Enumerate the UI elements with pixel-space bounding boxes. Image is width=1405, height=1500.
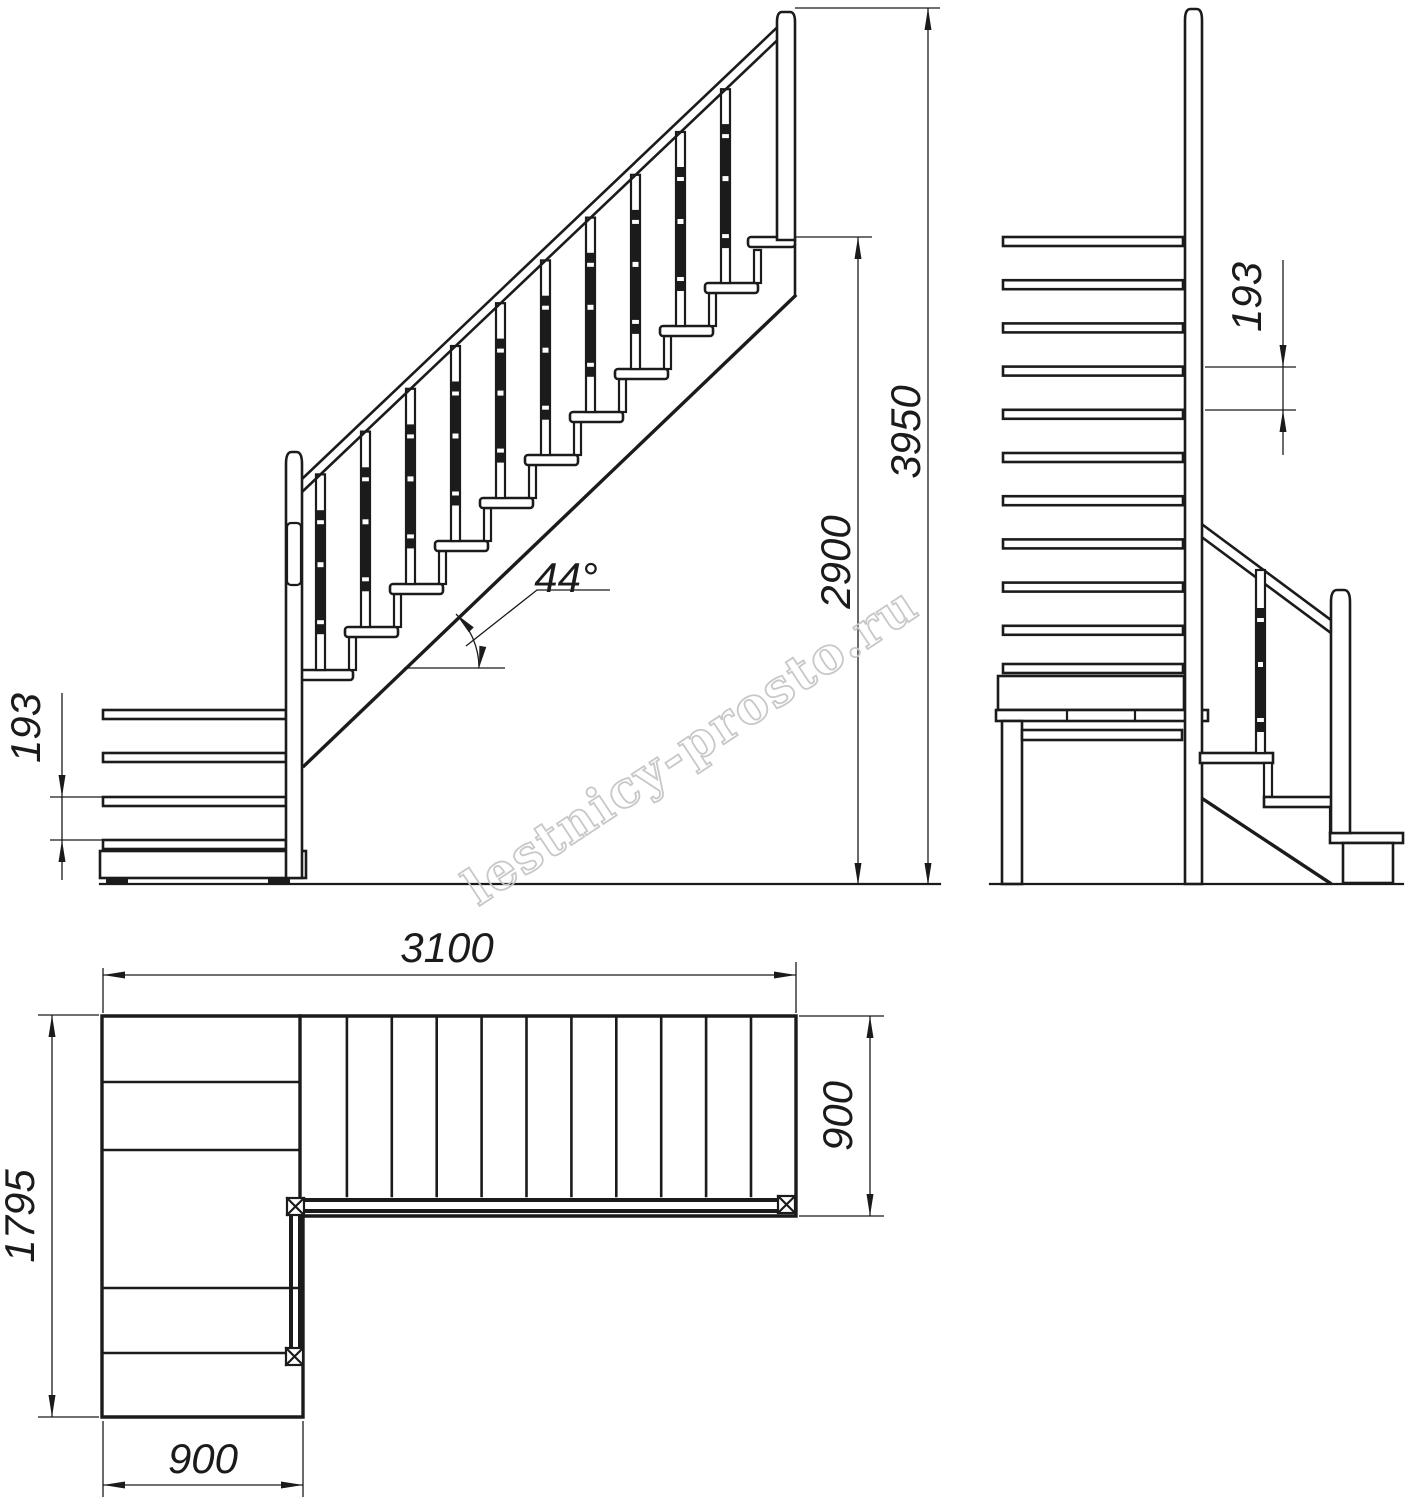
side-tread — [660, 326, 713, 336]
front-tread-board — [1003, 626, 1183, 635]
side-baluster-collar — [587, 253, 595, 263]
side-riser — [619, 379, 626, 412]
side-baluster-collar — [497, 453, 505, 463]
side-balusters — [316, 89, 730, 670]
side-baluster-notch — [318, 562, 324, 567]
front-bottom-step-base — [1343, 843, 1393, 883]
front-tread-board — [1003, 323, 1183, 332]
side-tread — [345, 627, 398, 637]
front-tread-board — [1003, 367, 1183, 376]
side-baluster-notch — [408, 476, 414, 481]
side-lower-flight-boards — [100, 710, 306, 878]
front-baluster-notch — [1258, 662, 1263, 667]
front-lower-stringer — [1203, 799, 1330, 883]
side-riser — [664, 336, 671, 369]
side-baluster-collar — [542, 296, 550, 306]
side-baluster-notch — [588, 305, 594, 310]
side-baluster-bar — [541, 310, 550, 406]
side-baluster-bar — [676, 181, 685, 277]
side-top-newel-post — [777, 12, 795, 240]
side-tread — [705, 283, 758, 293]
dim-plan-overall-depth: 1795 — [0, 1169, 43, 1263]
dim-plan-upper-flight-width: 900 — [814, 1080, 861, 1151]
side-baluster-collar — [362, 581, 370, 591]
front-tread-board — [1003, 664, 1183, 673]
front-lower-riser-1 — [1264, 763, 1272, 797]
plan-newel-bottom — [286, 1348, 303, 1365]
side-baluster-collar — [452, 382, 460, 392]
front-lower-tread-1 — [1200, 753, 1273, 763]
dim-front-riser-height: 193 — [1223, 262, 1270, 332]
front-tread-board — [1003, 280, 1183, 289]
plan-view — [102, 1016, 796, 1417]
side-lower-base — [100, 851, 306, 878]
side-lower-rail-end — [287, 523, 301, 585]
side-baluster-collar — [407, 424, 415, 434]
side-tread — [615, 369, 668, 379]
side-tread — [390, 584, 443, 594]
front-handrail-bottom — [1203, 538, 1331, 633]
side-lower-board — [103, 753, 286, 762]
staircase-drawing: 3950 2900 193 44° 193 3100 — [0, 0, 1405, 1500]
dim-side-incline-angle: 44° — [534, 554, 598, 601]
side-baluster-notch — [543, 348, 549, 353]
side-baluster-notch — [453, 434, 459, 439]
front-tread-board — [1003, 410, 1183, 419]
side-handrail-top — [302, 28, 777, 480]
front-newel-post — [1331, 590, 1350, 833]
side-tread — [480, 498, 533, 508]
front-tread-board — [1003, 583, 1183, 592]
front-left-leg — [1002, 721, 1022, 884]
side-riser — [394, 594, 401, 627]
side-baluster-collar — [677, 281, 685, 291]
side-baluster-bar — [361, 481, 370, 577]
plan-newel-right — [778, 1196, 795, 1213]
front-baluster-collar — [1257, 722, 1265, 732]
side-baluster-collar — [317, 510, 325, 520]
side-baluster-collar — [587, 367, 595, 377]
front-view — [990, 9, 1403, 884]
side-baluster-bar — [631, 224, 640, 320]
front-baluster-bar — [1256, 622, 1265, 718]
side-lower-board — [103, 710, 286, 719]
side-turn-newel-post — [286, 452, 302, 878]
dim-plan-overall-length: 3100 — [400, 924, 494, 971]
front-upper-flight-treads — [1003, 237, 1183, 673]
front-lower-tread-2 — [1264, 797, 1338, 807]
side-riser — [349, 637, 356, 670]
front-tread-board — [1003, 237, 1183, 246]
dim-side-overall-height: 3950 — [882, 385, 929, 479]
side-riser — [529, 465, 536, 498]
side-riser — [754, 250, 761, 283]
side-baluster-collar — [542, 410, 550, 420]
plan-outline — [102, 1016, 796, 1417]
side-baluster-collar — [722, 238, 730, 248]
side-lower-board — [103, 797, 286, 806]
side-handrail-bottom — [302, 41, 777, 493]
side-baluster-bar — [721, 138, 730, 234]
side-baluster-collar — [362, 467, 370, 477]
side-baluster-collar — [632, 210, 640, 220]
plan-newel-corner — [287, 1198, 304, 1215]
side-baluster-collar — [452, 496, 460, 506]
side-lower-board — [103, 840, 286, 849]
side-riser — [439, 551, 446, 584]
side-baluster-notch — [678, 219, 684, 224]
side-riser — [484, 508, 491, 541]
front-tread-board — [1003, 453, 1183, 462]
side-baluster-collar — [722, 124, 730, 134]
side-riser — [574, 422, 581, 455]
front-bottom-step — [1330, 833, 1403, 843]
side-baluster-bar — [451, 396, 460, 492]
side-baluster-collar — [632, 324, 640, 334]
dim-side-riser-height: 193 — [2, 693, 49, 763]
side-baluster-bar — [316, 524, 325, 620]
front-baluster-collar — [1257, 608, 1265, 618]
side-tread — [300, 670, 353, 680]
front-fascia-board — [998, 676, 1184, 710]
side-baluster-bar — [586, 267, 595, 363]
front-handrail-top — [1203, 525, 1331, 620]
front-tread-board — [1003, 496, 1183, 505]
side-baluster-collar — [407, 538, 415, 548]
side-baluster-bar — [496, 353, 505, 449]
side-baluster-collar — [497, 339, 505, 349]
dim-side-floor-to-top-tread: 2900 — [812, 515, 859, 610]
side-baluster-notch — [723, 176, 729, 181]
side-baluster-bar — [406, 438, 415, 534]
side-baluster-notch — [498, 391, 504, 396]
side-baluster-collar — [317, 624, 325, 634]
front-landing-platform — [996, 710, 1208, 721]
front-apron — [1022, 730, 1182, 740]
side-baluster-notch — [363, 519, 369, 524]
side-tread — [435, 541, 488, 551]
front-tread-board — [1003, 539, 1183, 548]
dim-plan-lower-flight-width: 900 — [168, 1435, 239, 1482]
side-riser — [709, 293, 716, 326]
drawing-page: 3950 2900 193 44° 193 3100 — [0, 0, 1405, 1500]
side-baluster-notch — [633, 262, 639, 267]
side-tread — [570, 412, 623, 422]
side-baluster-collar — [677, 167, 685, 177]
side-view — [100, 12, 940, 884]
side-tread — [525, 455, 578, 465]
